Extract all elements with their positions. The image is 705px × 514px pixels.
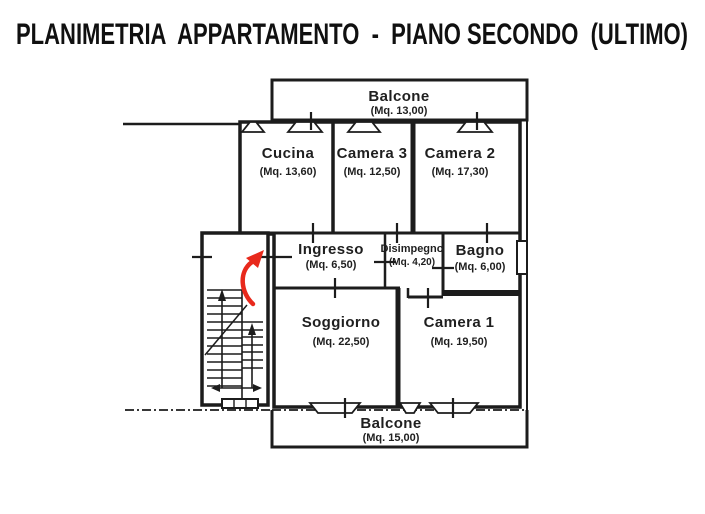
room-area-label: (Mq. 13,60) (260, 166, 317, 178)
room-label: Soggiorno (302, 314, 381, 331)
room-label: Bagno (456, 242, 505, 259)
room-camera3: Camera 3 (Mq. 12,50) (337, 145, 408, 178)
room-area-label: (Mq. 6,50) (306, 259, 357, 271)
room-area-label: (Mq. 6,00) (455, 261, 506, 273)
window-icon (310, 403, 360, 413)
bathroom-window (517, 241, 527, 274)
room-label: Camera 2 (425, 145, 496, 162)
room-label: Cucina (262, 145, 315, 162)
balcony-top-area: (Mq. 13,00) (371, 105, 428, 117)
room-area-label: (Mq. 22,50) (313, 336, 370, 348)
balcony-bottom: Balcone (Mq. 15,00) (272, 410, 527, 447)
balcony-top-label: Balcone (368, 88, 429, 105)
balcony-bottom-label: Balcone (360, 415, 421, 432)
room-cucina: Cucina (Mq. 13,60) (260, 145, 317, 178)
room-camera2: Camera 2 (Mq. 17,30) (425, 145, 496, 178)
room-bagno: Bagno (Mq. 6,00) (455, 242, 506, 273)
stairwell-window (222, 399, 258, 408)
room-area-label: (Mq. 12,50) (344, 166, 401, 178)
room-label: Disimpegno (381, 243, 444, 255)
floorplan-drawing: PLANIMETRIA APPARTAMENTO - PIANO SECONDO… (0, 0, 705, 514)
room-area-label: (Mq. 17,30) (432, 166, 489, 178)
page-title: PLANIMETRIA APPARTAMENTO - PIANO SECONDO… (16, 18, 688, 51)
room-area-label: (Mq. 19,50) (431, 336, 488, 348)
room-ingresso: Ingresso (Mq. 6,50) (298, 241, 364, 271)
room-label: Camera 3 (337, 145, 408, 162)
balcony-bottom-area: (Mq. 15,00) (363, 432, 420, 444)
room-label: Camera 1 (424, 314, 495, 331)
room-label: Ingresso (298, 241, 364, 258)
floorplan-page: PLANIMETRIA APPARTAMENTO - PIANO SECONDO… (0, 0, 705, 514)
room-area-label: (Mq. 4,20) (389, 257, 435, 268)
